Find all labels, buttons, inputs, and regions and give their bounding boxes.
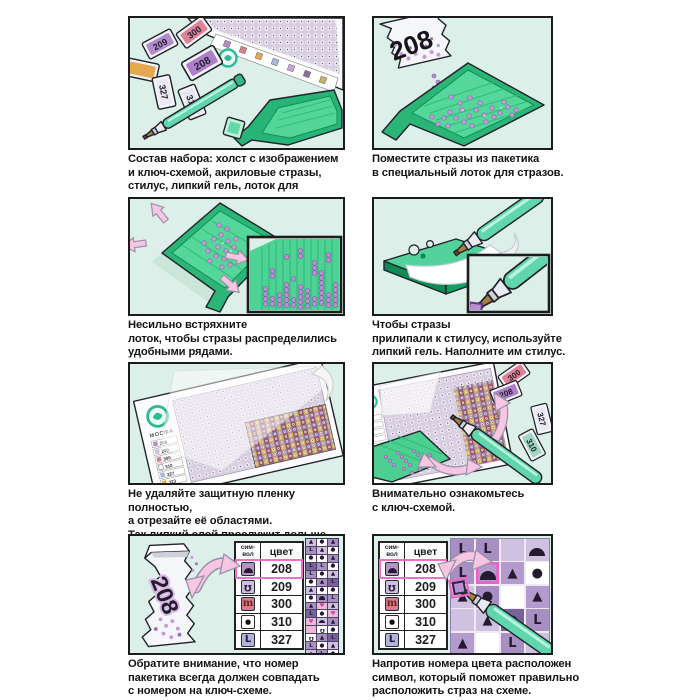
key-row-310: 310 xyxy=(380,613,446,631)
hook-symbol xyxy=(241,580,255,594)
grid-cell xyxy=(328,539,338,546)
grid-cell xyxy=(306,603,316,610)
grid-cell xyxy=(476,586,499,608)
key-table: сим- вол цвет 208 209 300 310 327 xyxy=(234,541,304,650)
grid-cell xyxy=(476,609,499,631)
tray-illustration xyxy=(382,63,544,146)
grid-cell xyxy=(317,595,327,602)
panel-kit-contents: 209 300 208 327 xyxy=(128,16,345,150)
caption-shake-tray: Несильно встряхните лоток, чтобы стразы … xyxy=(128,316,345,362)
key-row-327: 327 xyxy=(236,630,302,648)
grid-cell xyxy=(451,562,474,584)
grid-cell xyxy=(317,539,327,546)
grid-cell xyxy=(317,642,327,649)
grid-cell xyxy=(501,586,524,608)
grid-cell xyxy=(526,562,549,584)
bead-packet-208: 208 xyxy=(380,18,453,70)
grid-cell xyxy=(317,650,327,655)
kit-contents-illustration: 209 300 208 327 xyxy=(130,18,343,148)
tray-closeup-inset xyxy=(248,237,341,312)
grid-cell xyxy=(451,586,474,608)
caption-match-number: Обратите внимание, что номер пакетика вс… xyxy=(128,655,345,699)
key-row-300: 300 xyxy=(236,595,302,613)
grid-cell xyxy=(526,633,549,655)
bead-packet: 300 xyxy=(176,18,212,49)
grid-cell xyxy=(328,555,338,562)
grid-cell xyxy=(306,595,316,602)
grid-cell xyxy=(306,563,316,570)
key-row-209: 209 xyxy=(380,578,446,596)
symbol-board xyxy=(450,538,550,655)
letter-l-symbol xyxy=(385,633,399,647)
grid-cell xyxy=(328,634,338,641)
grid-cell xyxy=(306,634,316,641)
panel-shake-tray xyxy=(128,197,345,316)
key-table-header: сим- вол цвет xyxy=(380,543,446,560)
grid-cell xyxy=(306,579,316,586)
grid-cell xyxy=(306,571,316,578)
panel-peel-film: МОСФА 208 209 300 310 327 323 xyxy=(128,362,345,485)
pour-beads-illustration: 208 xyxy=(374,18,551,148)
caption-place-bead: Напротив номера цвета расположен символ,… xyxy=(372,655,584,699)
dot-symbol xyxy=(241,615,255,629)
key-row-209: 209 xyxy=(236,578,302,596)
bead-packet: 209 xyxy=(142,29,179,60)
grid-cell xyxy=(328,650,338,655)
grid-cell xyxy=(306,539,316,546)
grid-cell xyxy=(317,618,327,625)
bead-packet: 208 xyxy=(181,45,223,81)
arch-symbol xyxy=(385,597,399,611)
grid-cell xyxy=(451,609,474,631)
fill-stylus-illustration xyxy=(374,199,551,314)
grid-cell xyxy=(317,555,327,562)
grid-cell xyxy=(328,571,338,578)
grid-cell xyxy=(306,610,316,617)
tray-illustration xyxy=(234,90,342,146)
bead-packet: 327 xyxy=(152,74,176,109)
grid-cell xyxy=(317,603,327,610)
grid-cell xyxy=(306,626,316,633)
grid-cell xyxy=(306,642,316,649)
caption-fill-stylus: Чтобы стразы прилипали к стилусу, исполь… xyxy=(372,316,584,362)
dome-symbol xyxy=(241,562,255,576)
grid-cell xyxy=(526,539,549,561)
grid-cell xyxy=(526,586,549,608)
grid-cell xyxy=(328,626,338,633)
grid-cell xyxy=(328,642,338,649)
grid-cell xyxy=(317,547,327,554)
dot-symbol xyxy=(385,615,399,629)
grid-cell xyxy=(317,579,327,586)
panel-pour-beads: 208 xyxy=(372,16,553,150)
key-row-208: 208 xyxy=(380,560,446,578)
grid-cell xyxy=(501,633,524,655)
bead-packet-208: 208 208 xyxy=(139,541,202,650)
key-table-header: сим- вол цвет xyxy=(236,543,302,560)
grid-cell xyxy=(501,562,524,584)
panel-place-bead: сим- вол цвет 208 209 300 310 327 xyxy=(372,534,553,655)
grid-cell xyxy=(501,609,524,631)
grid-cell xyxy=(306,555,316,562)
grid-cell xyxy=(306,587,316,594)
grid-cell xyxy=(306,547,316,554)
grid-cell xyxy=(317,571,327,578)
grid-cell xyxy=(317,563,327,570)
grid-cell xyxy=(501,539,524,561)
letter-l-symbol xyxy=(241,633,255,647)
caption-pour-beads: Поместите стразы из пакетика в специальн… xyxy=(372,150,584,197)
svg-text:208: 208 xyxy=(146,572,185,618)
shake-tray-illustration xyxy=(130,199,343,314)
grid-cell xyxy=(476,539,499,561)
caption-kit-contents: Состав набора: холст с изображением и кл… xyxy=(128,150,345,197)
grid-cell xyxy=(328,563,338,570)
dome-symbol xyxy=(385,562,399,576)
panel-match-number: сим- вол цвет 208 209 300 310 327 xyxy=(128,534,345,655)
study-chart-illustration: 300 208 327 310 xyxy=(374,364,551,483)
grid-cell xyxy=(328,595,338,602)
key-table: сим- вол цвет 208 209 300 310 327 xyxy=(378,541,448,650)
grid-cell xyxy=(451,539,474,561)
grid-cell xyxy=(317,610,327,617)
arch-symbol xyxy=(241,597,255,611)
key-row-300: 300 xyxy=(380,595,446,613)
key-row-327: 327 xyxy=(380,630,446,648)
grid-cell xyxy=(306,650,316,655)
panel-study-chart: 300 208 327 310 xyxy=(372,362,553,485)
grid-cell xyxy=(328,610,338,617)
hook-symbol xyxy=(385,580,399,594)
grid-cell xyxy=(451,633,474,655)
grid-cell xyxy=(526,609,549,631)
match-arrow xyxy=(186,554,240,598)
svg-text:208: 208 xyxy=(146,572,185,618)
grid-cell xyxy=(328,587,338,594)
grid-cell xyxy=(317,587,327,594)
panel-fill-stylus xyxy=(372,197,553,316)
key-row-208: 208 xyxy=(236,560,302,578)
grid-cell-highlighted xyxy=(476,562,499,584)
instruction-sheet: 209 300 208 327 xyxy=(0,0,700,700)
caption-peel-film: Не удаляйте защитную пленку полностью, а… xyxy=(128,485,345,534)
caption-study-chart: Внимательно ознакомьтесь с ключ-схемой. xyxy=(372,485,584,534)
grid-cell xyxy=(328,603,338,610)
grid-cell xyxy=(476,633,499,655)
pattern-strip xyxy=(305,538,339,655)
grid-cell xyxy=(317,626,327,633)
key-row-310: 310 xyxy=(236,613,302,631)
grid-cell xyxy=(306,618,316,625)
grid-cell xyxy=(317,634,327,641)
grid-cell xyxy=(328,618,338,625)
panel-grid: 209 300 208 327 xyxy=(128,16,553,699)
grid-cell xyxy=(328,547,338,554)
peel-film-illustration: МОСФА 208 209 300 310 327 323 xyxy=(130,364,343,483)
grid-cell xyxy=(328,579,338,586)
gel-pad xyxy=(223,117,245,139)
